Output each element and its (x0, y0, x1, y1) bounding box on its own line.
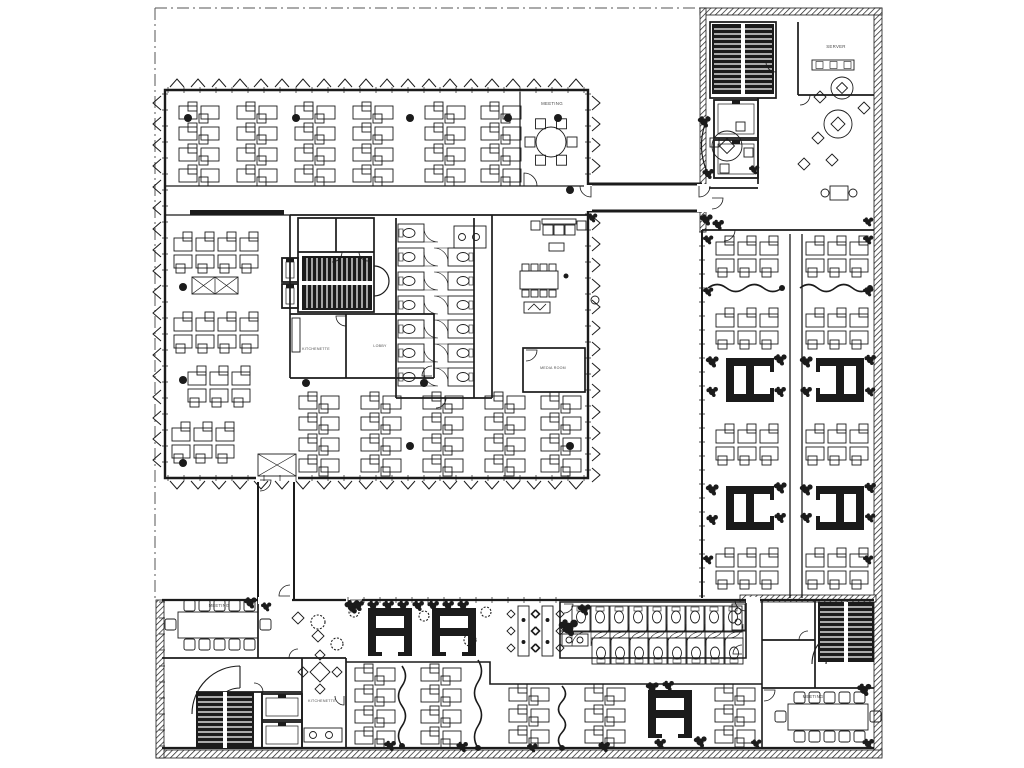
entry-mat (258, 454, 296, 476)
desk-cluster (806, 424, 868, 465)
plant (857, 684, 871, 696)
desk-cluster (421, 664, 461, 748)
pouf (419, 611, 429, 621)
plant (774, 354, 787, 365)
wc-stall (434, 344, 474, 362)
wc-stall (648, 606, 666, 646)
column (184, 114, 192, 122)
wc-stall (434, 296, 474, 314)
plant (863, 217, 873, 226)
shading-zigzag (592, 216, 600, 482)
elevator (262, 694, 302, 720)
column (566, 442, 574, 450)
desk-cluster (481, 102, 521, 186)
column (504, 114, 512, 122)
desk-cluster (806, 548, 868, 589)
elevator (262, 722, 302, 748)
wc-stall (629, 606, 647, 646)
wc-stall (398, 224, 438, 242)
desk-cluster (361, 392, 401, 476)
shading-zigzag (592, 96, 600, 173)
lounge-chair (312, 630, 324, 642)
sw-corridor-walls (258, 478, 294, 600)
chair (736, 122, 745, 131)
plant (706, 356, 719, 367)
planter-divider (399, 666, 406, 749)
wc-stall (398, 368, 438, 386)
desk-cluster (716, 308, 778, 349)
room-label-lobby: LOBBY (373, 344, 387, 348)
plant (774, 387, 786, 397)
desk-cluster (295, 102, 335, 186)
door-swing (279, 585, 290, 596)
plant (706, 515, 718, 525)
lounge-chair (814, 91, 826, 103)
column (406, 442, 414, 450)
pouf (311, 615, 325, 629)
stairwell (302, 256, 372, 310)
cafe-round-table (824, 110, 852, 138)
furniture-group (165, 60, 881, 752)
room-label-meeting-nw: MEETING (541, 101, 563, 106)
booth-seating (816, 358, 864, 402)
door-swing (800, 95, 810, 105)
planter-divider (559, 686, 566, 751)
desk-cluster (715, 684, 755, 747)
plant (774, 513, 786, 523)
lounge-chair (858, 102, 870, 114)
planter-divider (800, 285, 873, 292)
desk-cluster (299, 392, 339, 476)
door-swing (336, 316, 346, 326)
planter-divider (708, 285, 785, 292)
stairwell (712, 24, 774, 94)
wc-stall (591, 606, 609, 646)
coffee-table (549, 243, 564, 251)
desk-cluster (509, 684, 549, 747)
door-swing (764, 690, 775, 701)
desk-cluster (425, 102, 465, 186)
wall-openings (256, 184, 760, 604)
bridge-corridor-walls (588, 184, 702, 211)
wc-stall (398, 296, 438, 314)
cafe-table (821, 186, 857, 200)
lounge-chair (812, 132, 824, 144)
room-label-meeting-se: MEETING (803, 694, 824, 699)
lounge-table (520, 271, 558, 289)
room-label-kitchenette-core: KITCHENETTE (302, 347, 330, 351)
plant (703, 235, 713, 244)
plant (706, 387, 718, 397)
booth-seating (726, 486, 774, 530)
desk-cluster (353, 102, 393, 186)
desk-cluster (179, 102, 219, 186)
door-swing (724, 230, 735, 241)
elevator (714, 140, 758, 178)
room-label-media-room: MEDIA ROOM (540, 366, 566, 370)
column (179, 376, 187, 384)
chair (744, 148, 753, 157)
shading-zigzag (170, 79, 583, 87)
pouf (481, 607, 491, 617)
static-fixtures (192, 116, 846, 742)
column (179, 283, 187, 291)
desk-cluster (806, 308, 868, 349)
desk-cluster (716, 236, 778, 277)
column (406, 114, 414, 122)
column (302, 379, 310, 387)
wc-south-sinks (562, 604, 745, 646)
lounge-chair (826, 154, 838, 166)
pouf (331, 638, 343, 650)
floor-plan-canvas: Office building floor plan (0, 0, 1024, 768)
stairwell (818, 602, 874, 662)
desk-cluster (355, 664, 395, 748)
plant (412, 601, 424, 611)
high-table (531, 606, 564, 656)
plant (662, 681, 674, 691)
door-swing (526, 350, 537, 361)
shading-zigzag (153, 96, 161, 467)
plant (712, 220, 724, 230)
desk-cluster (174, 312, 258, 353)
desk-cluster (716, 548, 778, 589)
property-line (155, 8, 702, 598)
cafe-counter (812, 60, 854, 70)
plant (694, 736, 707, 747)
door-swing (422, 366, 432, 376)
column (420, 379, 428, 387)
wc-stall (724, 606, 742, 646)
booth-seating (648, 690, 692, 738)
kitchenette-table (298, 650, 342, 694)
desk-cluster (172, 422, 234, 463)
desk-cluster (541, 392, 581, 476)
wc-stall (398, 272, 438, 290)
plant (706, 484, 719, 495)
conference-table (775, 692, 881, 742)
door-swing (799, 631, 808, 640)
column (566, 186, 574, 194)
wc-stall (434, 320, 474, 338)
wc-stall (434, 248, 474, 266)
lounge-chair (798, 158, 810, 170)
wc-stall (686, 606, 704, 646)
wc-stall (434, 368, 474, 386)
plant (774, 482, 787, 493)
room-label-server: SERVER (826, 44, 845, 49)
meeting-round-table (525, 119, 577, 165)
planter-divider (475, 660, 482, 751)
booth-seating (432, 608, 476, 656)
desk-cluster (585, 684, 625, 747)
column (292, 114, 300, 122)
wc-stall (610, 606, 628, 646)
desk-cluster (237, 102, 277, 186)
lounge-chair (292, 612, 304, 624)
desk-cluster (485, 392, 525, 476)
desk-cluster (806, 236, 868, 277)
wc-stall (398, 320, 438, 338)
high-table (507, 606, 540, 656)
plant (703, 287, 713, 296)
door-swing (289, 649, 298, 658)
ping-pong-table (192, 277, 238, 294)
door-swing (524, 173, 537, 186)
floor-plan-page: Office building floor plan (0, 0, 1024, 768)
desk-cluster (188, 366, 250, 407)
chair (720, 164, 729, 173)
shading-zigzag (170, 481, 583, 489)
door-swing (335, 696, 344, 705)
column (179, 459, 187, 467)
plant (384, 741, 396, 751)
wc-stall (398, 344, 438, 362)
plant (703, 555, 713, 564)
stairwell (196, 692, 254, 748)
wc-stall (667, 606, 685, 646)
desk-cluster (716, 424, 778, 465)
door-swing (712, 198, 723, 209)
booth-seating (368, 608, 412, 656)
wc-stall (705, 606, 723, 646)
wc-stall (398, 248, 438, 266)
desk-cluster (174, 232, 258, 273)
wc-core-sink (454, 226, 486, 248)
column (554, 114, 562, 122)
door-swing (254, 683, 263, 692)
booth-seating (726, 358, 774, 402)
booth-seating (816, 486, 864, 530)
decoration-group (153, 79, 705, 746)
cafe-round-table (712, 131, 742, 161)
room-label-meeting-sw: MEETING (209, 603, 230, 608)
room-label-kitchenette-sw: KITCHENETTE (308, 699, 336, 703)
kitchenette-sw-counter (304, 728, 342, 742)
sofa-back (542, 219, 576, 224)
wc-stall (434, 272, 474, 290)
